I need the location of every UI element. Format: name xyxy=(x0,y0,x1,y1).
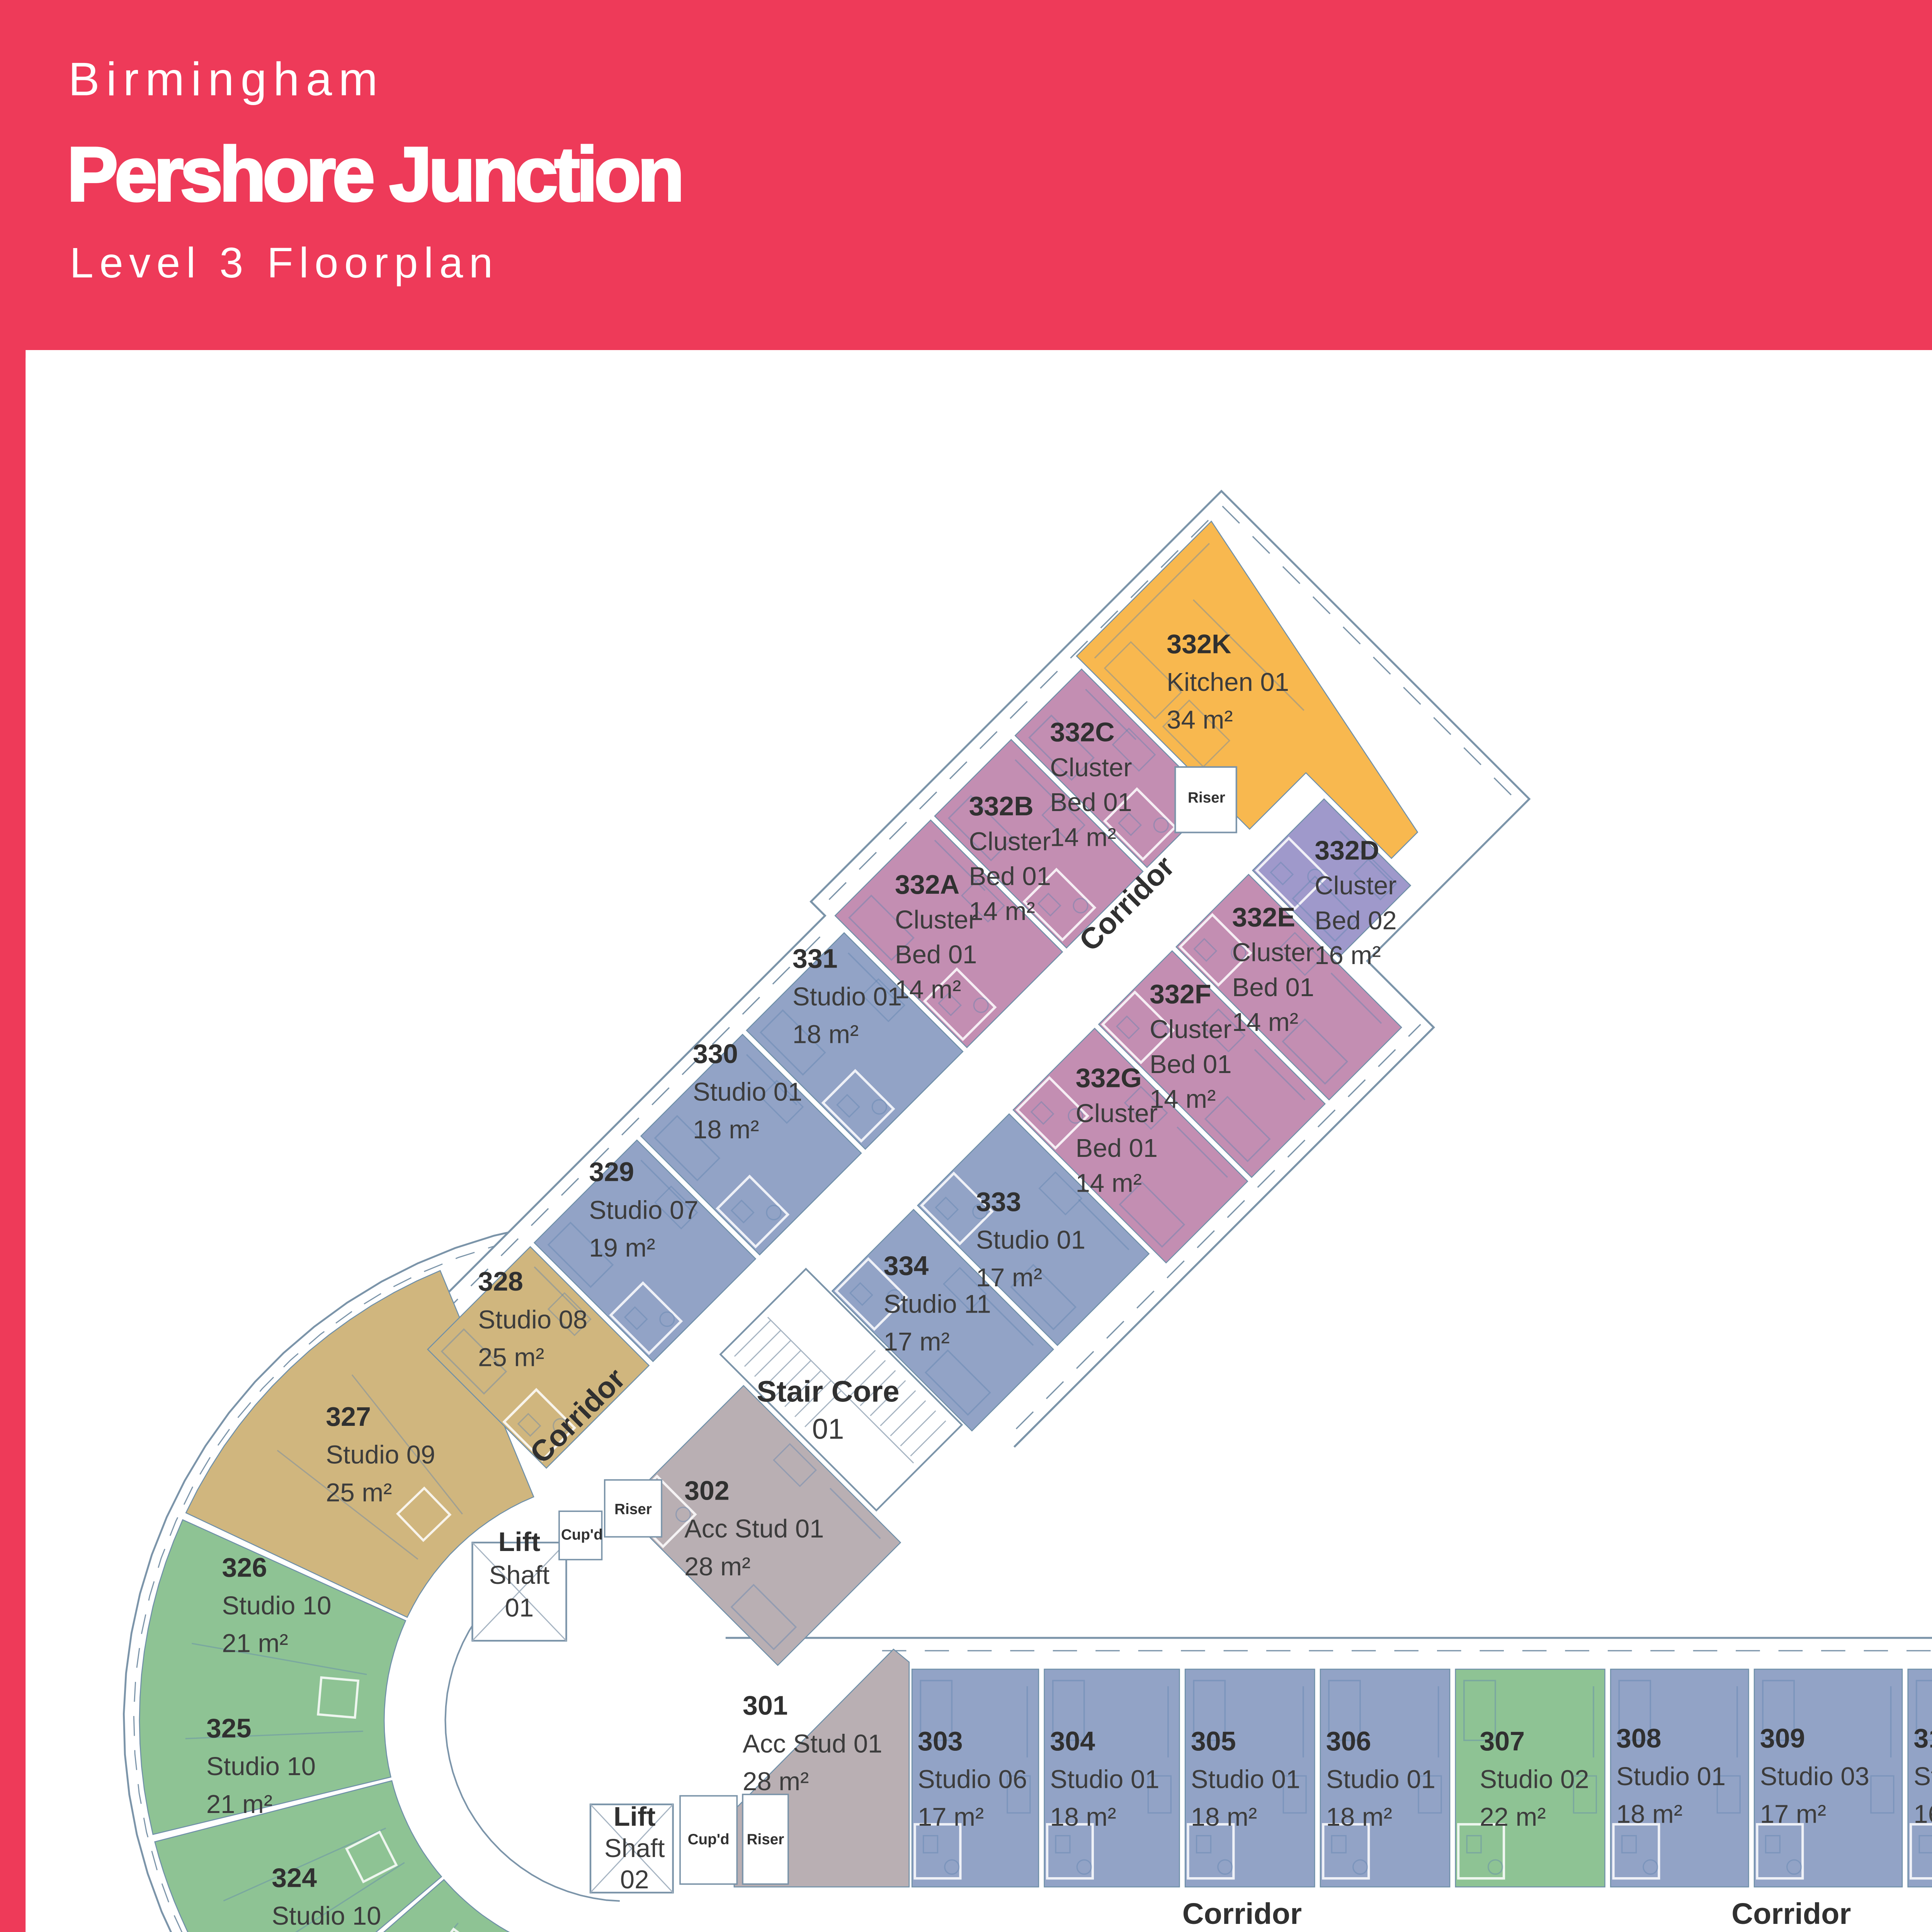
svg-text:304: 304 xyxy=(1050,1726,1095,1756)
svg-text:Pershore Junction: Pershore Junction xyxy=(67,131,681,217)
svg-text:14 m²: 14 m² xyxy=(895,975,961,1004)
svg-text:25 m²: 25 m² xyxy=(326,1478,392,1507)
svg-text:18 m²: 18 m² xyxy=(1191,1803,1257,1832)
svg-text:Bed 01: Bed 01 xyxy=(1050,788,1132,817)
svg-text:Studio 01: Studio 01 xyxy=(1191,1765,1300,1794)
svg-text:14 m²: 14 m² xyxy=(1076,1168,1142,1197)
svg-text:02: 02 xyxy=(620,1865,649,1894)
svg-text:Bed 01: Bed 01 xyxy=(1232,973,1314,1002)
svg-text:308: 308 xyxy=(1616,1723,1662,1753)
svg-text:Cluster: Cluster xyxy=(1050,753,1132,782)
svg-text:Cluster: Cluster xyxy=(1232,938,1314,967)
svg-text:Cluster: Cluster xyxy=(1315,871,1396,900)
svg-text:302: 302 xyxy=(684,1476,730,1506)
svg-text:Cluster: Cluster xyxy=(1076,1099,1158,1128)
svg-text:21 m²: 21 m² xyxy=(222,1629,288,1658)
svg-text:Studio 02: Studio 02 xyxy=(1480,1765,1589,1794)
svg-text:18 m²: 18 m² xyxy=(1050,1803,1116,1832)
svg-text:14 m²: 14 m² xyxy=(969,897,1035,926)
svg-text:Bed 01: Bed 01 xyxy=(1150,1050,1231,1079)
svg-text:324: 324 xyxy=(272,1862,317,1893)
svg-text:332A: 332A xyxy=(895,869,959,900)
svg-text:01: 01 xyxy=(505,1594,534,1622)
svg-text:332D: 332D xyxy=(1315,835,1379,865)
svg-text:16 m²: 16 m² xyxy=(1913,1800,1932,1829)
svg-text:Studio 03: Studio 03 xyxy=(1760,1762,1869,1791)
svg-text:28 m²: 28 m² xyxy=(743,1767,809,1796)
svg-text:18 m²: 18 m² xyxy=(1326,1803,1392,1832)
svg-text:331: 331 xyxy=(793,943,838,973)
svg-text:Studio 04: Studio 04 xyxy=(1913,1762,1932,1791)
svg-text:Studio 10: Studio 10 xyxy=(272,1901,381,1930)
svg-text:17 m²: 17 m² xyxy=(1760,1800,1826,1829)
svg-text:Cluster: Cluster xyxy=(895,905,977,934)
svg-text:Cup'd: Cup'd xyxy=(561,1527,603,1543)
svg-text:329: 329 xyxy=(589,1157,634,1187)
svg-text:327: 327 xyxy=(326,1401,371,1432)
svg-text:Studio 01: Studio 01 xyxy=(793,982,902,1011)
svg-text:Acc Stud 01: Acc Stud 01 xyxy=(743,1729,882,1758)
svg-text:306: 306 xyxy=(1326,1726,1371,1756)
svg-text:14 m²: 14 m² xyxy=(1150,1085,1216,1114)
svg-text:334: 334 xyxy=(884,1251,929,1281)
svg-text:Studio 01: Studio 01 xyxy=(693,1078,802,1107)
svg-text:14 m²: 14 m² xyxy=(1232,1008,1298,1037)
svg-text:18 m²: 18 m² xyxy=(1616,1800,1682,1829)
svg-text:Studio 01: Studio 01 xyxy=(1050,1765,1159,1794)
svg-text:332G: 332G xyxy=(1076,1063,1142,1093)
svg-text:307: 307 xyxy=(1480,1726,1525,1756)
svg-text:Birmingham: Birmingham xyxy=(68,53,384,105)
svg-text:301: 301 xyxy=(743,1690,788,1721)
svg-text:Studio 10: Studio 10 xyxy=(206,1752,316,1781)
svg-text:Riser: Riser xyxy=(614,1501,652,1517)
svg-text:17 m²: 17 m² xyxy=(918,1803,984,1832)
svg-text:Corridor: Corridor xyxy=(1182,1897,1302,1930)
svg-text:332F: 332F xyxy=(1150,979,1211,1009)
svg-text:Studio 07: Studio 07 xyxy=(589,1196,698,1225)
svg-text:Studio 10: Studio 10 xyxy=(222,1591,331,1620)
svg-text:17 m²: 17 m² xyxy=(976,1263,1042,1292)
svg-text:330: 330 xyxy=(693,1039,738,1069)
svg-text:Bed 01: Bed 01 xyxy=(969,862,1051,891)
svg-text:305: 305 xyxy=(1191,1726,1236,1756)
svg-text:18 m²: 18 m² xyxy=(793,1020,859,1049)
svg-text:17 m²: 17 m² xyxy=(884,1327,950,1356)
svg-text:Studio 01: Studio 01 xyxy=(976,1226,1085,1255)
svg-text:Cluster: Cluster xyxy=(1150,1015,1231,1044)
svg-text:332C: 332C xyxy=(1050,717,1114,747)
svg-text:34 m²: 34 m² xyxy=(1167,706,1233,735)
svg-text:Studio 01: Studio 01 xyxy=(1616,1762,1726,1791)
svg-text:22 m²: 22 m² xyxy=(1480,1803,1546,1832)
svg-text:326: 326 xyxy=(222,1552,267,1582)
svg-text:309: 309 xyxy=(1760,1723,1805,1753)
svg-text:Lift: Lift xyxy=(614,1801,656,1832)
svg-text:332K: 332K xyxy=(1167,629,1231,659)
svg-text:16 m²: 16 m² xyxy=(1315,941,1381,970)
svg-text:310: 310 xyxy=(1913,1723,1932,1753)
svg-text:303: 303 xyxy=(918,1726,963,1756)
svg-text:19 m²: 19 m² xyxy=(589,1233,655,1262)
svg-text:Shaft: Shaft xyxy=(489,1561,550,1590)
svg-text:Shaft: Shaft xyxy=(604,1834,665,1863)
svg-text:14 m²: 14 m² xyxy=(1050,823,1116,852)
svg-text:Corridor: Corridor xyxy=(1731,1897,1851,1930)
svg-text:Level 3 Floorplan: Level 3 Floorplan xyxy=(70,239,498,287)
svg-text:25 m²: 25 m² xyxy=(478,1343,544,1372)
svg-text:Studio 01: Studio 01 xyxy=(1326,1765,1435,1794)
svg-text:Kitchen 01: Kitchen 01 xyxy=(1167,668,1289,697)
svg-text:Studio 11: Studio 11 xyxy=(884,1289,991,1318)
svg-text:325: 325 xyxy=(206,1713,252,1743)
svg-text:Studio 06: Studio 06 xyxy=(918,1765,1027,1794)
svg-text:Riser: Riser xyxy=(1188,789,1225,806)
svg-text:Stair Core: Stair Core xyxy=(757,1375,900,1408)
svg-text:332B: 332B xyxy=(969,791,1034,821)
svg-text:21 m²: 21 m² xyxy=(206,1790,272,1819)
svg-text:28 m²: 28 m² xyxy=(684,1552,750,1581)
svg-text:Riser: Riser xyxy=(747,1831,784,1848)
svg-text:Studio 08: Studio 08 xyxy=(478,1305,587,1334)
svg-text:18 m²: 18 m² xyxy=(693,1115,759,1144)
svg-text:328: 328 xyxy=(478,1266,523,1296)
svg-text:Bed 01: Bed 01 xyxy=(1076,1134,1158,1163)
svg-text:Bed 02: Bed 02 xyxy=(1315,906,1396,935)
svg-text:333: 333 xyxy=(976,1187,1021,1217)
svg-text:01: 01 xyxy=(812,1413,844,1445)
svg-text:Studio 09: Studio 09 xyxy=(326,1440,435,1469)
svg-text:Acc Stud 01: Acc Stud 01 xyxy=(684,1514,824,1543)
svg-text:Cluster: Cluster xyxy=(969,827,1051,856)
svg-text:Lift: Lift xyxy=(498,1527,541,1557)
svg-text:332E: 332E xyxy=(1232,902,1295,932)
svg-text:Bed 01: Bed 01 xyxy=(895,940,977,969)
svg-text:Cup'd: Cup'd xyxy=(688,1831,730,1848)
